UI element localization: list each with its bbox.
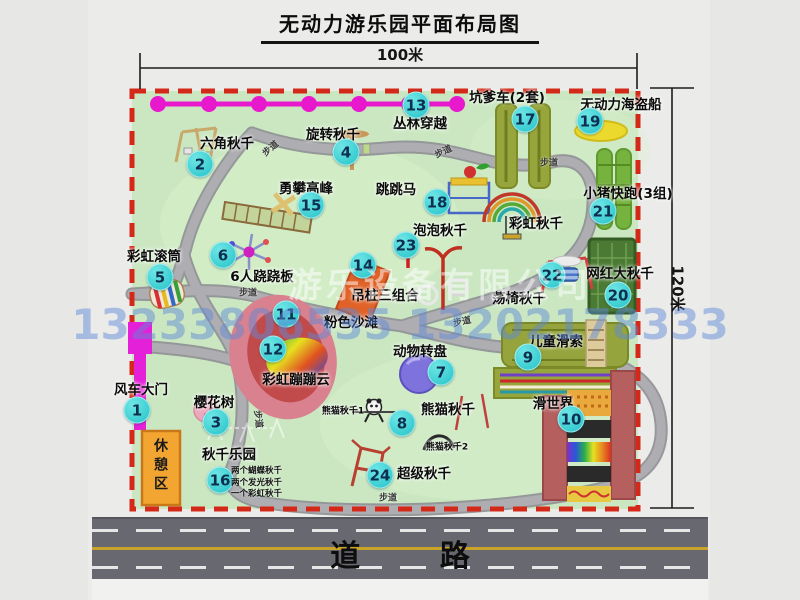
- trail-label: 步道: [379, 491, 397, 504]
- spot-number-badge: 21: [590, 198, 617, 225]
- trail-label: 步道: [239, 286, 257, 299]
- spot-number-badge: 12: [260, 336, 287, 363]
- spot-label: 熊猫秋千2: [426, 440, 468, 453]
- spot-label: 风车大门: [114, 378, 168, 398]
- spot-label: 彩虹滚筒: [127, 245, 181, 265]
- spot-number-badge: 8: [389, 410, 416, 437]
- spot-number-badge: 5: [147, 264, 174, 291]
- spot-number-badge: 7: [428, 359, 455, 386]
- spot-label: 坑爹车(2套): [469, 86, 545, 106]
- spot-number-badge: 10: [558, 406, 585, 433]
- road: 道 路: [92, 517, 708, 581]
- swing-park-note: 两个发光秋千: [231, 478, 282, 490]
- spot-number-badge: 9: [515, 344, 542, 371]
- road-label: 道 路: [92, 531, 708, 575]
- spot-label: 彩虹蹦蹦云: [262, 368, 330, 388]
- spot-label: 熊猫秋千1: [322, 404, 364, 417]
- spot-label: 跳跳马: [376, 178, 417, 198]
- spot-number-badge: 22: [539, 262, 566, 289]
- spot-number-badge: 18: [424, 189, 451, 216]
- spot-label: 泡泡秋千: [413, 219, 467, 239]
- spot-number-badge: 3: [203, 409, 230, 436]
- spot-number-badge: 13: [403, 92, 430, 119]
- spot-label: 吊桩三组合: [351, 284, 419, 304]
- spot-label: 粉色沙滩: [324, 311, 378, 331]
- trail-label: 步道: [432, 141, 454, 160]
- spot-label: 秋千乐园: [202, 443, 256, 463]
- spot-label: 超级秋千: [397, 462, 451, 482]
- spot-number-badge: 20: [605, 282, 632, 309]
- spot-label: 动物转盘: [393, 340, 447, 360]
- spot-label: 六角秋千: [200, 132, 254, 152]
- trail-label: 步道: [259, 137, 281, 159]
- spot-label: 彩虹秋千: [509, 212, 563, 232]
- swing-park-note: 两个蝴蝶秋千: [231, 466, 282, 478]
- swing-park-notes: 两个蝴蝶秋千 两个发光秋千 一个彩虹秋千: [231, 466, 282, 501]
- spot-number-badge: 23: [393, 232, 420, 259]
- spot-label: 荡椅秋千: [492, 287, 546, 307]
- spot-number-badge: 19: [577, 108, 604, 135]
- rest-area-label: 休憩区: [150, 438, 170, 495]
- trail-label: 步道: [540, 156, 558, 169]
- spot-number-badge: 4: [333, 139, 360, 166]
- spot-number-badge: 17: [512, 106, 539, 133]
- spot-number-badge: 6: [210, 242, 237, 269]
- spot-label: 熊猫秋千: [421, 398, 475, 418]
- below-road-strip: [92, 579, 708, 600]
- spot-number-badge: 24: [367, 462, 394, 489]
- spot-number-badge: 16: [207, 467, 234, 494]
- spot-label: 网红大秋千: [586, 262, 654, 282]
- spot-number-badge: 11: [273, 301, 300, 328]
- trail-label: 步道: [251, 409, 266, 428]
- spot-number-badge: 2: [187, 151, 214, 178]
- spot-label: 6人跷跷板: [230, 265, 293, 285]
- spot-number-badge: 1: [124, 397, 151, 424]
- spot-layer: 风车大门1六角秋千2樱花树3旋转秋千4彩虹滚筒56人跷跷板6动物转盘7熊猫秋千8…: [0, 0, 800, 600]
- spot-number-badge: 14: [350, 252, 377, 279]
- spot-number-badge: 15: [298, 192, 325, 219]
- swing-park-note: 一个彩虹秋千: [231, 489, 282, 501]
- trail-label: 步道: [452, 313, 472, 329]
